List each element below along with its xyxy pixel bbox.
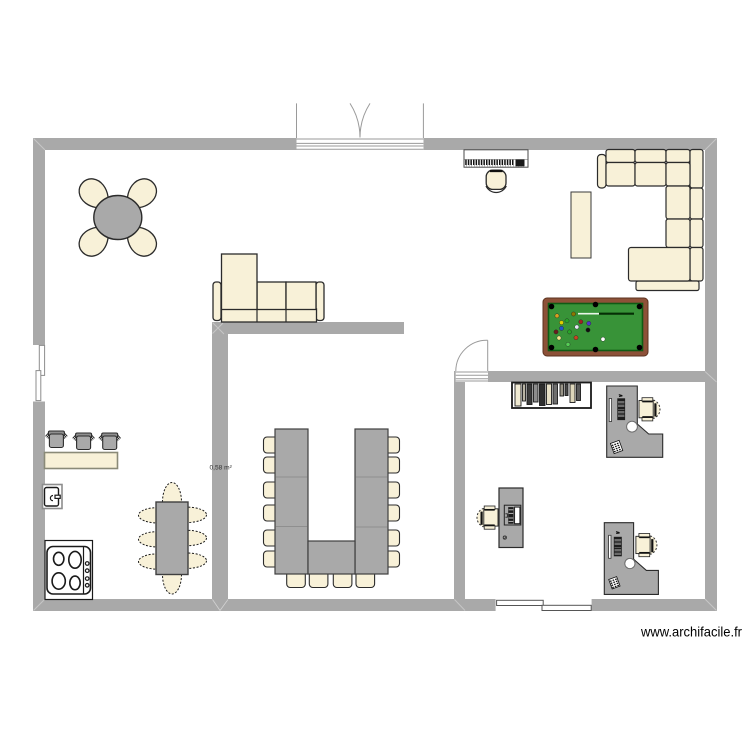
- svg-text:0,58 m²: 0,58 m²: [210, 465, 233, 472]
- svg-text:www.archifacile.fr: www.archifacile.fr: [640, 624, 742, 640]
